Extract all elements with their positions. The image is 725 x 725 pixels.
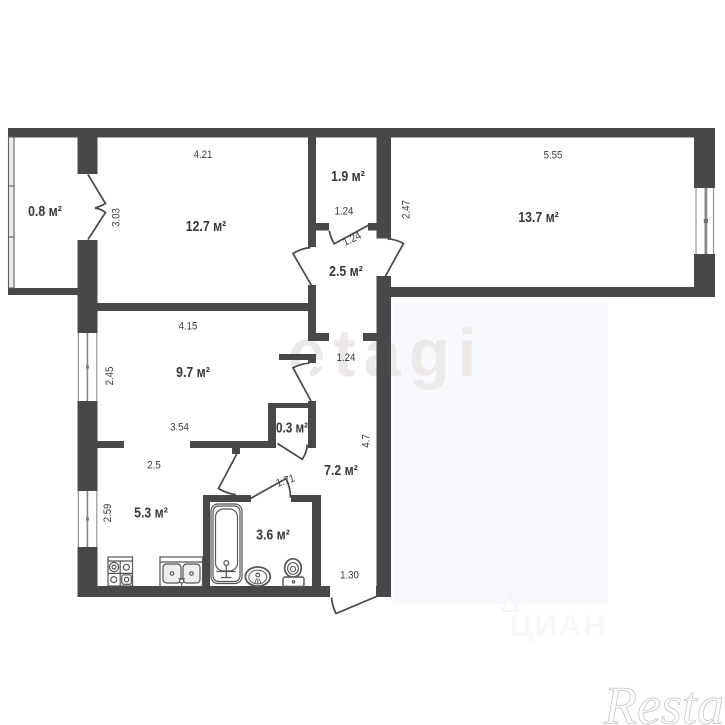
svg-text:13.7 м²: 13.7 м²: [518, 209, 559, 225]
svg-text:1.24: 1.24: [335, 206, 354, 218]
svg-text:Restate: Restate: [603, 676, 725, 725]
svg-text:3.54: 3.54: [170, 422, 189, 434]
svg-text:2.5: 2.5: [147, 460, 161, 472]
svg-text:9.7 м²: 9.7 м²: [176, 364, 210, 380]
svg-text:ЦИАН: ЦИАН: [510, 608, 608, 643]
svg-text:4.21: 4.21: [194, 150, 213, 162]
svg-text:0.3 м²: 0.3 м²: [276, 419, 309, 435]
svg-text:1.30: 1.30: [340, 570, 359, 582]
svg-text:7.2 м²: 7.2 м²: [324, 462, 358, 478]
svg-text:3.6 м²: 3.6 м²: [256, 527, 290, 543]
svg-text:3.03: 3.03: [111, 208, 123, 227]
svg-text:1.9 м²: 1.9 м²: [331, 168, 365, 184]
svg-text:2.45: 2.45: [105, 366, 117, 385]
svg-text:4.7: 4.7: [361, 434, 373, 448]
svg-text:4.15: 4.15: [179, 321, 198, 333]
svg-text:2.5 м²: 2.5 м²: [329, 263, 363, 279]
svg-text:2.47: 2.47: [401, 200, 413, 219]
svg-text:1.24: 1.24: [337, 353, 356, 365]
svg-text:5.55: 5.55: [544, 150, 563, 162]
svg-text:2.59: 2.59: [103, 503, 115, 522]
svg-text:0.8 м²: 0.8 м²: [28, 203, 62, 219]
svg-text:12.7 м²: 12.7 м²: [186, 218, 227, 234]
svg-text:5.3 м²: 5.3 м²: [134, 505, 168, 521]
